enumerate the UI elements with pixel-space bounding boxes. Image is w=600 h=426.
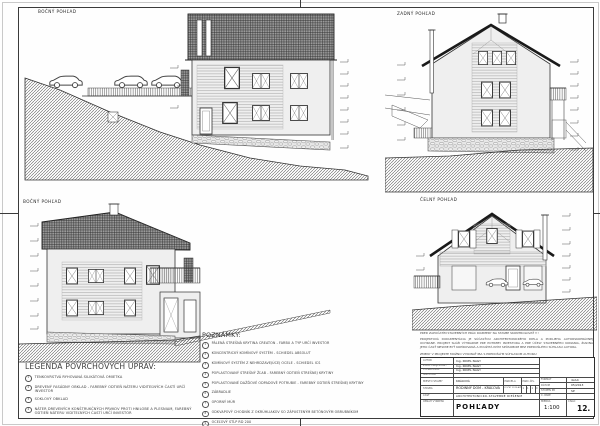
siding-band [440,252,546,266]
note-item: 3 KOMÍNOVÝ SYSTÉM Z NEHRDZAVEJÚCEJ OCELE… [202,362,392,369]
format-value: 4xA4 [571,378,579,382]
author-label: AUTOR [423,359,432,362]
terrace-railing [82,88,194,96]
legend-item: 4 NÁTER DREVENÝCH KONŠTRUKČNÝCH PRVKOV P… [25,407,200,416]
entry-door [200,108,212,134]
rear-elevation-drawing [385,10,593,196]
note-item-number: 6 [202,391,209,398]
note-item-text: POPLASTOVANÉ DAŽĎOVÉ ODPADOVÉ POTRUBIE -… [212,382,364,386]
legend-item-number: 2 [25,385,32,392]
house-side [42,204,200,344]
date-label: DÁTUM [541,384,550,387]
legend-item: 2 DREVENÝ FASÁDNY OBKLAD - FAREBNÝ ODTIE… [25,385,200,394]
floors-cell: 1 [527,387,529,390]
number-label: ČÍSLO [568,400,575,403]
legend-item-text: TENKOVRSTVÁ RYHOVANÁ SILIKÁTOVÁ OMIETKA [35,375,123,379]
steel-chimney [430,30,434,93]
note-item-text: ODKVAPOVÝ CHODNÍK Z OKRÚHLIAKOV SO ZÁPUS… [212,411,359,415]
note-item: 4 POPLASTOVANÝ STREŠNÝ ŽĽAB - FAREBNÝ OD… [202,372,392,379]
steel-chimney [543,215,547,260]
note-item-number: 5 [202,382,209,389]
note-item-text: OPORNÝ MÚR [212,401,236,405]
scale-label: MIERKA [541,400,551,403]
author-value: Ing. PAVEL NAGY [456,359,481,363]
date-value: 05/2013 [571,383,583,387]
note-item: 9 OCEĽOVÝ STĹP RD 200 [202,421,392,426]
site-value: KRÁĽOVÁ [456,379,470,383]
notes-title: POZNÁMKY: [202,331,392,339]
balcony-right [550,88,586,151]
retaining-walls-left [385,95,432,138]
note-item-number: 4 [202,372,209,379]
note-item-number: 3 [202,362,209,369]
floors-cell: 1 [532,387,534,390]
terrain [385,148,593,192]
note-item: 5 POPLASTOVANÉ DAŽĎOVÉ ODPADOVÉ POTRUBIE… [202,382,392,389]
chimney [110,204,118,215]
note-item-text: OCEĽOVÝ STĹP RD 200 [212,421,252,425]
part-label: ČASŤ [423,394,430,397]
drawn-by-label: VYPRACOVAL [423,368,439,371]
left-center-mark [0,213,18,214]
note-item-number: 7 [202,401,209,408]
front-door [506,266,520,290]
chimney-stack-left [181,70,189,96]
title-block: AUTOR Ing. PAVEL NAGY ZODP. PROJEKTANT I… [420,357,595,417]
note-item-number: 1 [202,342,209,349]
balcony [150,268,200,283]
house-rear [422,14,560,153]
investor-label: INVESTOR [423,373,436,376]
disclaimer-body: PROJEKTOVÁ DOKUMENTÁCIA JE SÚČASŤOU ARCH… [420,338,593,350]
drawing-sheet: BOČNÝ POHĽAD ZADNÝ POHĽAD BOČNÝ POHĽAD Č… [0,0,600,426]
legend-item: 1 TENKOVRSTVÁ RYHOVANÁ SILIKÁTOVÁ OMIETK… [25,375,200,382]
stage-label: STUPEŇ PD [541,389,555,392]
note-item-number: 9 [202,421,209,426]
format-label: FORMÁT [541,378,551,381]
annex-door-2 [184,300,196,332]
legend-item-number: 4 [25,407,32,414]
note-item: 8 ODKVAPOVÝ CHODNÍK Z OKRÚHLIAKOV SO ZÁP… [202,411,392,418]
drawing-title: POHĽADY [456,403,500,411]
roof-band [42,212,190,250]
gable-window-right [516,230,540,248]
ridge-chimney [499,14,506,23]
floors-cell: 0 [536,387,538,390]
note-item-text: ZÁBRADLIE [212,391,232,395]
copyright-disclaimer: PRED ZAPOČATÍM STAVEBNÝCH PRÁC ROZMERY N… [420,332,593,359]
parcel-label: PARCELA [505,380,516,383]
top-center-mark [300,0,301,7]
garage-right [524,266,542,290]
side-elevation-hill-drawing [22,8,372,182]
parcel-value: PARC.ČÍS. [523,380,535,383]
note-item: 6 ZÁBRADLIE [202,391,392,398]
legend-item-text: DREVENÝ FASÁDNY OBKLAD - FAREBNÝ ODTIEŇ … [35,385,200,394]
front-elevation-drawing [412,196,597,332]
legend-item-text: NÁTER DREVENÝCH KONŠTRUKČNÝCH PRVKOV PRO… [35,407,200,416]
note-item-text: KONCENTRICKÝ KOMÍNOVÝ SYSTÉM - SCHIEDEL … [212,352,311,356]
legend-item-number: 1 [25,375,32,382]
note-item-text: KOMÍNOVÝ SYSTÉM Z NEHRDZAVEJÚCEJ OCELE -… [212,362,321,366]
note-item: 1 PÁLENÁ STREŠNÁ KRYTINA CREATON - FARBU… [202,342,392,349]
project-label: STAVBA [423,387,433,390]
chimney-2 [206,20,211,56]
content-label: OBSAH VÝKRESU [423,400,444,403]
legend-item-number: 3 [25,397,32,404]
note-item-text: PÁLENÁ STREŠNÁ KRYTINA CREATON - FARBU A… [212,342,330,346]
disclaimer-warning: PRED ZAPOČATÍM STAVEBNÝCH PRÁC ROZMERY N… [420,332,593,336]
parked-cars [50,76,184,88]
note-item-number: 8 [202,411,209,418]
copy-label: Č. PARÉ [541,394,551,397]
legend-item-text: SOKLOVÝ OBKLAD [35,397,68,401]
notes-panel: POZNÁMKY: 1 PÁLENÁ STREŠNÁ KRYTINA CREAT… [202,331,392,426]
site-label: MIESTO STAVBY [423,380,443,383]
slope-detail-box [108,112,118,122]
responsible-value: Ing. PAVEL NAGY [456,364,481,368]
surface-legend: LEGENDA POVRCHOVÝCH ÚPRAV: 1 TENKOVRSTVÁ… [25,362,200,415]
note-item: 7 OPORNÝ MÚR [202,401,392,408]
legend-item: 3 SOKLOVÝ OBKLAD [25,397,200,404]
fence-left [414,276,440,288]
part-value: ARCHITEKTONICKO-STAVEBNÉ RIEŠENIE [456,394,523,398]
project-value: RODINNÝ DOM - KRÁĽOVÁ [456,386,500,390]
floors-cell: 1 [523,387,525,390]
drawing-number: 12. [577,404,590,413]
garage-left [452,266,476,290]
floors-label: POČET PODLAŽÍ [505,387,522,389]
gable-window-left [452,230,476,248]
elevation-marks [30,223,38,329]
legend-title: LEGENDA POVRCHOVÝCH ÚPRAV: [25,362,200,371]
stage-value: SP [571,389,575,393]
note-item-text: POPLASTOVANÝ STREŠNÝ ŽĽAB - FAREBNÝ ODTI… [212,372,334,376]
house-side [181,14,337,150]
responsible-label: ZODP. PROJEKTANT [423,364,447,367]
chimney-1 [197,20,202,56]
drawn-by-value: Ing. PAVEL NAGY [456,368,481,372]
note-item-number: 2 [202,352,209,359]
house-front [430,214,554,303]
note-item: 2 KONCENTRICKÝ KOMÍNOVÝ SYSTÉM - SCHIEDE… [202,352,392,359]
scale-value: 1:100 [544,405,560,411]
stone-plinth [192,135,330,150]
